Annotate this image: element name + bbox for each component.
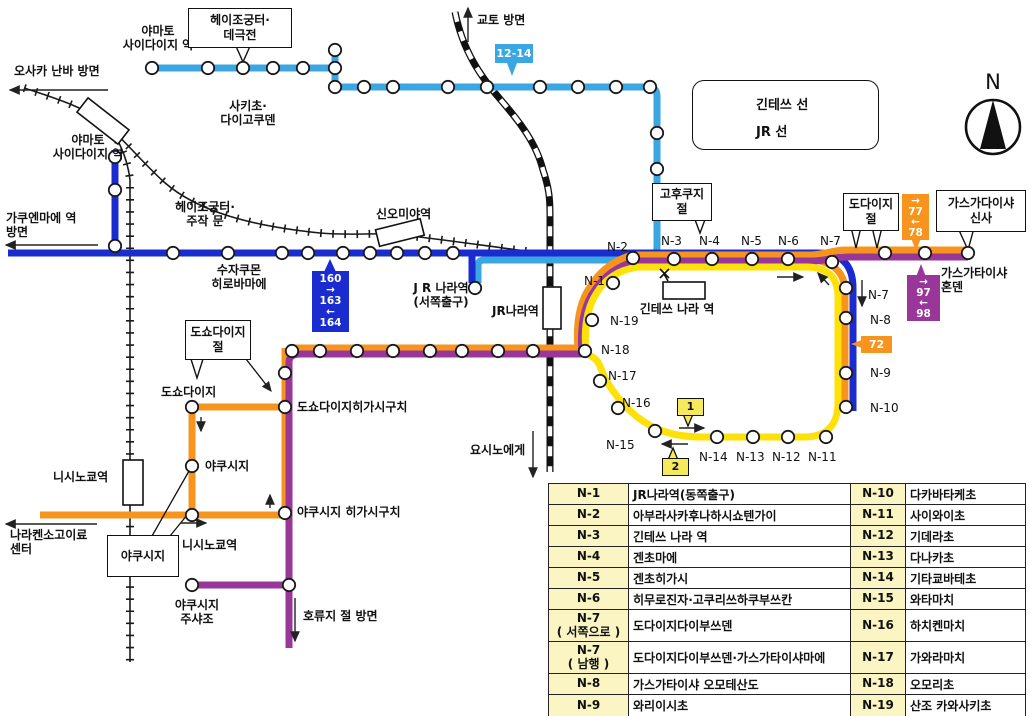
callout-kasuga-shrine: 가스가다이샤 신사 bbox=[936, 190, 1026, 232]
stop-code: N-18 bbox=[851, 674, 906, 695]
bus-stop-marker bbox=[286, 345, 298, 357]
badge-loop-direction-1: 1 bbox=[677, 398, 704, 416]
bus-stop-marker bbox=[586, 314, 598, 326]
label-jr-nara-west-exit: J R 나라역 (서쪽출구) bbox=[413, 281, 468, 310]
bus-stop-marker bbox=[627, 252, 639, 264]
stop-code: N-7 ( 남행 ) bbox=[549, 642, 629, 674]
stop-name: 긴테쓰 나라 역 bbox=[629, 526, 851, 547]
stop-code: N-10 bbox=[851, 484, 906, 505]
label-yoshino-direction: 요시노에게 bbox=[470, 443, 525, 457]
stop-code: N-15 bbox=[851, 589, 906, 610]
bus-stop-marker bbox=[782, 431, 794, 443]
label-gakuenmae-direction: 가쿠엔마에 역 방면 bbox=[6, 211, 76, 240]
bus-stop-marker bbox=[840, 367, 852, 379]
stop-code: N-11 bbox=[851, 505, 906, 526]
bus-stop-marker bbox=[186, 401, 198, 413]
mark-n14: N-14 bbox=[699, 450, 728, 464]
bus-stop-marker bbox=[186, 579, 198, 591]
bus-stop-marker bbox=[267, 62, 279, 74]
legend-jr-label: JR 선 bbox=[756, 121, 787, 140]
bus-stop-marker bbox=[651, 163, 663, 175]
stop-code: N-16 bbox=[851, 610, 906, 642]
table-row: N-3긴테쓰 나라 역 N-12기데라초 bbox=[549, 526, 1026, 547]
mark-n15: N-15 bbox=[606, 438, 635, 452]
label-shin-omiya: 신오미야역 bbox=[376, 207, 431, 221]
badge-route-72: 72 bbox=[861, 336, 892, 353]
bus-stop-marker bbox=[481, 81, 493, 93]
stop-code: N-17 bbox=[851, 642, 906, 674]
stop-name-table: N-1JR나라역(동쪽출구) N-10다카바타케초 N-2아부라사카후나하시쇼텐… bbox=[548, 483, 1026, 716]
table-row: N-4겐초마에 N-13다나카초 bbox=[549, 547, 1026, 568]
bus-stop-marker bbox=[711, 431, 723, 443]
stop-code: N-14 bbox=[851, 568, 906, 589]
bus-stop-marker bbox=[109, 240, 121, 252]
table-row: N-8가스가타이샤 오모테산도 N-18오모리초 bbox=[549, 674, 1026, 695]
bus-stop-marker bbox=[668, 253, 680, 265]
stop-code: N-2 bbox=[549, 505, 629, 526]
stop-name: 와타마치 bbox=[906, 589, 1026, 610]
bus-stop-marker bbox=[492, 345, 504, 357]
bus-stop-marker bbox=[314, 345, 326, 357]
label-yamato-saidaiji-left: 야마토 사이다이지 역 bbox=[53, 133, 123, 162]
label-heijo-suzakumon: 헤이조궁터· 주작 문 bbox=[175, 200, 235, 229]
bus-stop-marker bbox=[329, 62, 341, 74]
stop-name: 가와라마치 bbox=[906, 642, 1026, 674]
bus-stop-marker bbox=[237, 62, 249, 74]
mark-n4: N-4 bbox=[699, 234, 720, 248]
bus-stop-marker bbox=[746, 253, 758, 265]
table-row: N-5겐초히가시 N-14기타쿄바테초 bbox=[549, 568, 1026, 589]
mark-n5: N-5 bbox=[741, 234, 762, 248]
mark-n11: N-11 bbox=[808, 450, 837, 464]
stop-name: 산조 카와사키초 bbox=[906, 695, 1026, 716]
callout-kofukuji: 고후쿠지 절 bbox=[652, 183, 712, 221]
stop-name: 사이와이초 bbox=[906, 505, 1026, 526]
bus-stop-marker bbox=[279, 367, 291, 379]
bus-stop-marker bbox=[186, 509, 198, 521]
bus-stop-marker bbox=[651, 127, 663, 139]
bus-stop-marker bbox=[283, 579, 295, 591]
mark-n9: N-9 bbox=[870, 366, 891, 380]
label-nishinokyo-station: 니시노쿄역 bbox=[53, 470, 108, 484]
label-kasuga-honden: 가스가타이샤 혼덴 bbox=[941, 266, 1007, 295]
nara-bus-route-map: 야마토 사이다이지 역 헤이조궁터· 데극전 사키초· 다이고쿠덴 오사카 난바… bbox=[0, 0, 1029, 716]
kintetsu-nara-pointer bbox=[660, 269, 669, 281]
stop-code: N-8 bbox=[549, 674, 629, 695]
route-72-77-78-orange bbox=[40, 250, 968, 515]
bus-stop-marker bbox=[594, 375, 606, 387]
stop-name: 아부라사카후나하시쇼텐가이 bbox=[629, 505, 851, 526]
bus-stop-marker bbox=[527, 345, 539, 357]
bus-stop-marker bbox=[146, 62, 158, 74]
table-row: N-2아부라사카후나하시쇼텐가이 N-11사이와이초 bbox=[549, 505, 1026, 526]
mark-n7-side: N-7 bbox=[868, 288, 889, 302]
bus-stop-marker bbox=[419, 247, 431, 259]
label-medical-center-direction: 나라켄소고이료 센터 bbox=[10, 528, 87, 557]
label-toshodaiji-higashiguchi: 도쇼다이지히가시구치 bbox=[297, 400, 407, 414]
label-sakicho-daigokuden: 사키초· 다이고쿠덴 bbox=[220, 99, 275, 128]
toshodaiji-callout-arrow bbox=[246, 359, 271, 391]
callout-heijo-daigokuden: 헤이조궁터· 데극전 bbox=[188, 8, 292, 48]
stop-code: N-12 bbox=[851, 526, 906, 547]
mark-n2: N-2 bbox=[607, 240, 628, 254]
mark-n10: N-10 bbox=[870, 401, 899, 415]
stop-name: 도다이지다이부쓰덴 bbox=[629, 610, 851, 642]
bus-stop-marker bbox=[329, 44, 341, 56]
label-osaka-namba-direction: 오사카 난바 방면 bbox=[14, 64, 100, 78]
bus-stop-marker bbox=[337, 247, 349, 259]
label-horyuji-direction: 호류지 절 방면 bbox=[303, 609, 378, 623]
label-yakushiji-higashiguchi: 야쿠시지 히가시구치 bbox=[297, 505, 401, 519]
stop-name: 다카바타케초 bbox=[906, 484, 1026, 505]
table-row: N-6히무로진자·고쿠리쓰하쿠부쓰칸 N-15와타마치 bbox=[549, 589, 1026, 610]
nishinokyo-station-symbol bbox=[123, 460, 143, 505]
stop-name: JR나라역(동쪽출구) bbox=[629, 484, 851, 505]
stop-name: 기타쿄바테초 bbox=[906, 568, 1026, 589]
bus-stop-marker bbox=[644, 81, 656, 93]
bus-stop-marker bbox=[456, 345, 468, 357]
bus-stop-marker bbox=[358, 81, 370, 93]
shin-omiya-station-symbol bbox=[376, 219, 425, 247]
bus-stop-marker bbox=[469, 282, 481, 294]
bus-stop-marker bbox=[706, 253, 718, 265]
kintetsu-nara-station-symbol bbox=[663, 282, 705, 299]
stop-code: N-7 ( 서쪽으로 ) bbox=[549, 610, 629, 642]
stop-name: 겐초마에 bbox=[629, 547, 851, 568]
bus-stop-marker bbox=[879, 247, 891, 259]
compass-icon bbox=[966, 100, 1020, 154]
label-kintetsu-nara-station: 긴테쓰 나라 역 bbox=[640, 302, 715, 316]
bus-stop-marker bbox=[782, 253, 794, 265]
bus-stop-marker bbox=[649, 425, 661, 437]
stop-code: N-19 bbox=[851, 695, 906, 716]
stop-code: N-1 bbox=[549, 484, 629, 505]
mark-n13: N-13 bbox=[736, 450, 765, 464]
bus-stop-marker bbox=[840, 312, 852, 324]
bus-stop-marker bbox=[826, 256, 838, 268]
badge-12-14-pointer bbox=[507, 63, 517, 76]
stop-name: 기데라초 bbox=[906, 526, 1026, 547]
label-suzakumon-hirobamae: 수자쿠몬 히로바마에 bbox=[211, 263, 266, 292]
stop-name: 히무로진자·고쿠리쓰하쿠부쓰칸 bbox=[629, 589, 851, 610]
bus-stop-marker bbox=[424, 345, 436, 357]
label-yakushiji-stop: 야쿠시지 bbox=[205, 459, 249, 473]
bus-stop-marker bbox=[202, 62, 214, 74]
badge-route-77-78: → 77 ← 78 bbox=[902, 194, 929, 240]
stop-code: N-5 bbox=[549, 568, 629, 589]
bus-stop-marker bbox=[279, 401, 291, 413]
bus-stop-marker bbox=[442, 81, 454, 93]
bus-stop-marker bbox=[387, 345, 399, 357]
stop-name: 오모리초 bbox=[906, 674, 1026, 695]
bus-stop-marker bbox=[747, 431, 759, 443]
bus-stop-marker bbox=[351, 345, 363, 357]
label-jr-nara-station: JR나라역 bbox=[492, 304, 539, 318]
table-row: N-7 ( 남행 )도다이지다이부쓰덴·가스가타이샤마에 N-17가와라마치 bbox=[549, 642, 1026, 674]
stop-name: 하치켄마치 bbox=[906, 610, 1026, 642]
label-kyoto-direction: 교토 방면 bbox=[477, 13, 525, 27]
stop-name: 와리이시초 bbox=[629, 695, 851, 716]
callout-yakushiji: 야쿠시지 bbox=[107, 535, 179, 577]
bus-stop-marker bbox=[820, 431, 832, 443]
bus-stop-marker bbox=[302, 247, 314, 259]
stop-code: N-3 bbox=[549, 526, 629, 547]
bus-stop-marker bbox=[447, 247, 459, 259]
badge-route-97-98: → 97 ← 98 bbox=[907, 275, 940, 321]
bus-stop-marker bbox=[279, 507, 291, 519]
stop-name: 가스가타이샤 오모테산도 bbox=[629, 674, 851, 695]
compass-north-label: N bbox=[985, 70, 1001, 94]
bus-stop-marker bbox=[109, 184, 121, 196]
badge-route-160-163-164: 160 → 163 ← 164 bbox=[312, 271, 349, 332]
badge-loop-direction-2: 2 bbox=[662, 458, 689, 476]
bus-stop-marker bbox=[391, 247, 403, 259]
badge-route-12-14: 12-14 bbox=[495, 44, 533, 63]
mark-n16: N-16 bbox=[622, 396, 651, 410]
bus-stop-marker bbox=[840, 282, 852, 294]
bus-stop-marker bbox=[297, 62, 309, 74]
jr-nara-station-symbol bbox=[543, 287, 561, 329]
callout-todaiji: 도다이지 절 bbox=[843, 193, 899, 231]
mark-n12: N-12 bbox=[772, 450, 801, 464]
stop-code: N-9 bbox=[549, 695, 629, 716]
label-yamato-saidaiji-top: 야마토 사이다이지 역 bbox=[123, 24, 193, 53]
stop-name: 도다이지다이부쓰덴·가스가타이샤마에 bbox=[629, 642, 851, 674]
bus-stop-marker bbox=[329, 81, 341, 93]
table-row: N-9와리이시초 N-19산조 카와사키초 bbox=[549, 695, 1026, 716]
mark-n6: N-6 bbox=[778, 234, 799, 248]
bus-stop-marker bbox=[610, 81, 622, 93]
bus-stop-marker bbox=[919, 247, 931, 259]
mark-n1: N-1 bbox=[584, 274, 605, 288]
bus-stop-marker bbox=[534, 81, 546, 93]
callout-toshodaiji-temple: 도쇼다이지 절 bbox=[185, 320, 251, 360]
label-nishinokyo-stop: 니시노쿄역 bbox=[182, 538, 237, 552]
table-row: N-7 ( 서쪽으로 )도다이지다이부쓰덴 N-16하치켄마치 bbox=[549, 610, 1026, 642]
stop-code: N-13 bbox=[851, 547, 906, 568]
mark-n17: N-17 bbox=[608, 369, 637, 383]
bus-stop-marker bbox=[167, 247, 179, 259]
mark-n3: N-3 bbox=[661, 234, 682, 248]
table-row: N-1JR나라역(동쪽출구) N-10다카바타케초 bbox=[549, 484, 1026, 505]
mark-n8: N-8 bbox=[870, 313, 891, 327]
label-yakushiji-chushajo: 야쿠시지 주샤조 bbox=[175, 598, 219, 627]
bus-stop-marker bbox=[607, 277, 619, 289]
bus-stop-marker bbox=[840, 401, 852, 413]
mark-n19: N-19 bbox=[610, 314, 639, 328]
bus-stop-marker bbox=[572, 81, 584, 93]
bus-stop-marker bbox=[364, 247, 376, 259]
bus-stop-marker bbox=[222, 247, 234, 259]
jr-railway-line bbox=[455, 12, 550, 472]
bus-stop-marker bbox=[276, 247, 288, 259]
mark-n7: N-7 bbox=[820, 234, 841, 248]
stop-code: N-6 bbox=[549, 589, 629, 610]
label-toshodaiji-stop: 도쇼다이지 bbox=[161, 385, 216, 399]
stop-code: N-4 bbox=[549, 547, 629, 568]
bus-stop-marker bbox=[387, 81, 399, 93]
yakushiji-callout-line-1 bbox=[152, 471, 189, 536]
bus-stop-marker bbox=[579, 345, 591, 357]
stop-name: 다나카초 bbox=[906, 547, 1026, 568]
bus-stop-marker bbox=[962, 247, 974, 259]
bus-stop-marker bbox=[186, 460, 198, 472]
mark-n18: N-18 bbox=[601, 343, 630, 357]
legend-kintetsu-label: 긴테쓰 선 bbox=[756, 94, 808, 113]
stop-name: 겐초히가시 bbox=[629, 568, 851, 589]
